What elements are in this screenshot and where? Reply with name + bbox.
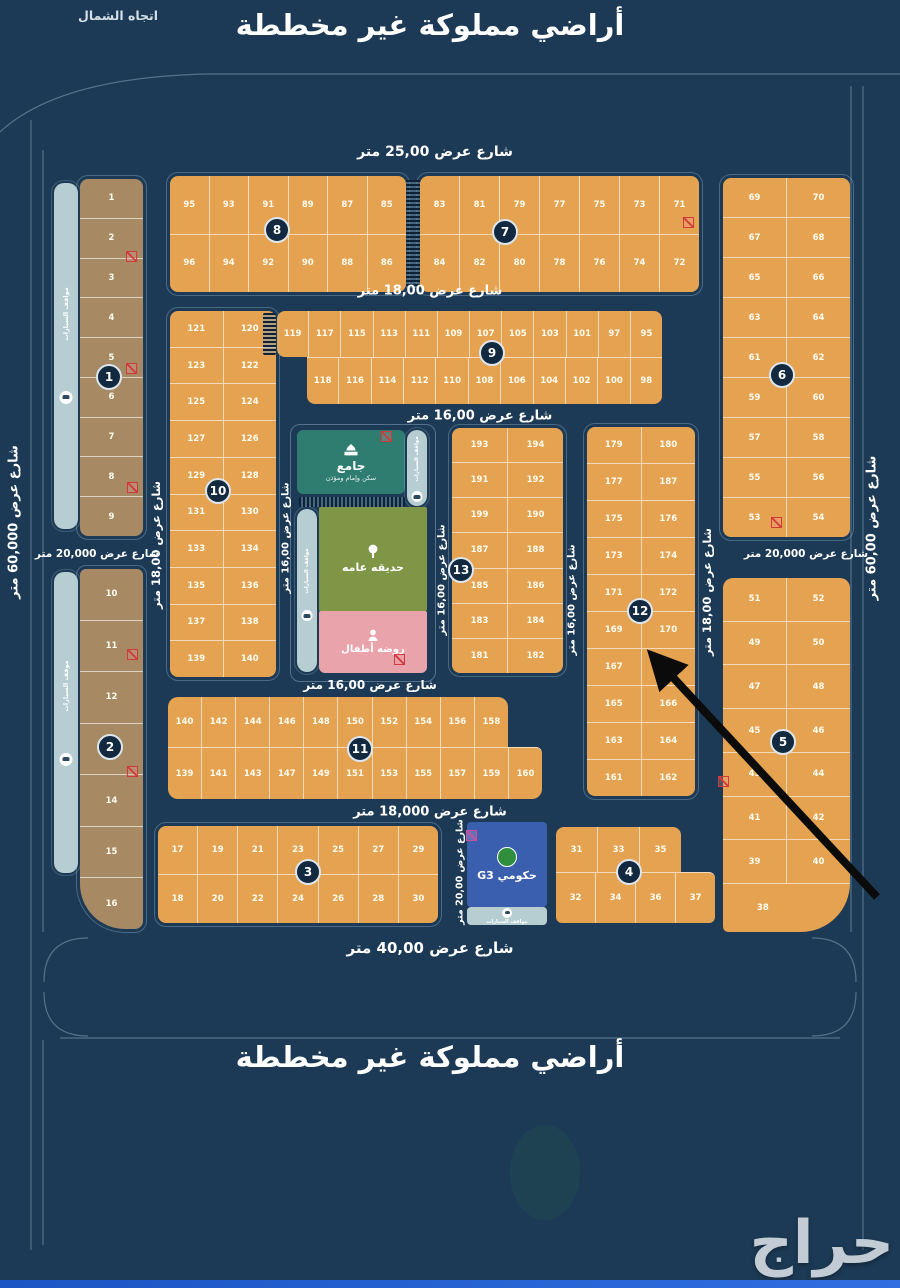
plot-row: 123122 (170, 347, 276, 384)
plot-cell: 18 (158, 875, 197, 923)
plot-cell: 160 (508, 748, 542, 799)
plot-cell: 93 (209, 176, 249, 234)
pink-marker-icon (466, 830, 477, 841)
plot-cell: 83 (420, 176, 459, 234)
hazard-marker-icon (381, 431, 392, 442)
block-4-badge: 4 (616, 859, 642, 885)
block-2-badge: 2 (97, 734, 123, 760)
car-icon (60, 391, 73, 404)
plot-cell: 64 (786, 298, 850, 337)
parking-strip-government: مواقف السيارات (467, 907, 547, 925)
plot-cell: 52 (786, 578, 850, 621)
plot-cell: 194 (507, 428, 563, 462)
plot-cell: 26 (318, 875, 358, 923)
plot-cell: 111 (405, 311, 437, 357)
block-3-badge: 3 (295, 859, 321, 885)
plot-cell: 65 (723, 258, 786, 297)
block-13-badge: 13 (448, 557, 474, 583)
plot-cell: 164 (641, 723, 696, 759)
plot-cell: 1 (80, 179, 143, 218)
plot-cell: 87 (327, 176, 367, 234)
street-label-60m-right: شارع عرض 60,00 متر (865, 456, 880, 601)
plot-cell: 183 (452, 604, 507, 638)
parking-strip-block-1: مواقف السيارات (54, 183, 78, 529)
plot-cell: 67 (723, 218, 786, 257)
hazard-marker-icon (718, 776, 729, 787)
street-label-16m-v-b: شارع عرض 16,00 متر (437, 524, 448, 635)
plot-cell: 137 (170, 605, 223, 641)
parking-strip-label: مواقف السيارات (62, 288, 70, 341)
north-direction-label: اتجاه الشمال (78, 8, 158, 23)
plot-cell: 60 (786, 378, 850, 417)
plot-cell: 56 (786, 458, 850, 497)
street-label-18m-v-left: شارع عرض 18,00 متر (149, 481, 163, 609)
plot-row: 163164 (587, 722, 695, 759)
plot-cell: 148 (303, 697, 337, 747)
block-9-badge: 9 (479, 340, 505, 366)
block-6-badge: 6 (769, 362, 795, 388)
plot-cell: 28 (358, 875, 398, 923)
plot-cell: 119 (277, 311, 308, 357)
plot-row: 193194 (452, 428, 563, 462)
plot-cell: 62 (786, 338, 850, 377)
plot-cell: 140 (168, 697, 201, 747)
plot-cell: 31 (556, 827, 597, 872)
plot-row: 175176 (587, 500, 695, 537)
plot-row: 173174 (587, 537, 695, 574)
haraj-watermark: حراج (750, 1208, 894, 1278)
block-8-badge: 8 (264, 217, 290, 243)
hazard-marker-icon (771, 517, 782, 528)
hazard-marker-icon (127, 649, 138, 660)
plot-cell: 102 (565, 358, 597, 404)
plot-cell: 3 (80, 259, 143, 298)
pedestrian-path-hatch (406, 180, 420, 288)
block-10-badge: 10 (205, 478, 231, 504)
plot-cell: 147 (269, 748, 303, 799)
plot-cell: 29 (398, 826, 438, 874)
plot-cell: 158 (474, 697, 508, 747)
plot-row: 15 (80, 826, 143, 878)
plot-cell: 76 (579, 235, 619, 293)
plot-cell: 95 (630, 311, 662, 357)
plot-row: 12 (80, 671, 143, 723)
plot-row: 7 (80, 417, 143, 457)
plot-cell: 182 (507, 639, 563, 673)
plot-cell: 186 (507, 569, 563, 603)
plot-cell: 73 (619, 176, 659, 234)
plot-cell: 135 (170, 568, 223, 604)
plot-cell: 58 (786, 418, 850, 457)
plot-cell: 143 (235, 748, 269, 799)
street-label-16m-fac: شارع عرض 16,00 متر (303, 678, 437, 692)
plot-cell: 17 (158, 826, 197, 874)
plot-cell: 166 (641, 686, 696, 722)
plot-cell: 134 (223, 531, 277, 567)
plot-row: 6768 (723, 217, 850, 257)
plot-cell: 4 (80, 298, 143, 337)
plot-cell: 153 (372, 748, 406, 799)
plot-cell: 106 (500, 358, 532, 404)
plot-cell: 95 (170, 176, 209, 234)
gov-badge-icon (497, 847, 517, 867)
parking-strip-label: مواقف السيارات (304, 548, 310, 593)
plot-cell: 142 (201, 697, 235, 747)
plot-cell: 41 (723, 797, 786, 840)
plot-cell: 180 (641, 427, 696, 463)
street-label-18m-v-right: شارع عرض 18,00 متر (700, 528, 714, 656)
plot-cell: 40 (786, 840, 850, 883)
plot-cell: 168 (641, 649, 696, 685)
plot-cell: 78 (539, 235, 579, 293)
plot-row: 1 (80, 179, 143, 218)
plot-cell: 124 (223, 384, 277, 420)
plot-row: 4344 (723, 752, 850, 796)
plot-row: 5354 (723, 497, 850, 537)
plot-cell: 167 (587, 649, 641, 685)
plot-row: 140142144146148150152154156158 (168, 697, 508, 747)
plot-cell: 100 (597, 358, 629, 404)
plot-row: 137138 (170, 604, 276, 641)
plot-row: 199190 (452, 497, 563, 532)
child-icon (366, 629, 380, 642)
plot-row: 167168 (587, 648, 695, 685)
plot-cell: 7 (80, 418, 143, 457)
plot-cell: 98 (630, 358, 662, 404)
plot-cell: 174 (641, 538, 696, 574)
plot-cell: 184 (507, 604, 563, 638)
bottom-bar (0, 1280, 900, 1288)
plot-cell: 20 (197, 875, 237, 923)
plot-row: 5758 (723, 417, 850, 457)
plot-cell: 36 (635, 873, 675, 923)
plot-cell: 57 (723, 418, 786, 457)
block-7-plots: 8381797775737184828078767472 (420, 176, 699, 292)
plot-cell: 115 (340, 311, 372, 357)
plot-cell: 188 (507, 533, 563, 567)
parking-strip-mosque: مواقف السيارات (407, 430, 427, 506)
plot-row: 179180 (587, 427, 695, 463)
plot-cell: 125 (170, 384, 223, 420)
plot-cell: 139 (168, 748, 201, 799)
pedestrian-path-hatch (299, 497, 405, 507)
street-label-20000m-right: شارع عرض 20,000 متر (744, 548, 868, 560)
plot-cell: 156 (440, 697, 474, 747)
car-icon (412, 491, 423, 502)
plot-cell: 55 (723, 458, 786, 497)
plot-row: 181182 (452, 638, 563, 673)
mosque-icon (343, 443, 359, 457)
plot-row: 10 (80, 569, 143, 620)
plot-cell: 152 (372, 697, 406, 747)
plot-cell: 116 (338, 358, 370, 404)
plot-cell: 173 (587, 538, 641, 574)
car-icon (60, 753, 73, 766)
plot-row: 14 (80, 774, 143, 826)
plot-cell: 101 (566, 311, 598, 357)
plot-cell: 39 (723, 840, 786, 883)
plot-cell: 89 (288, 176, 328, 234)
mosque-title: جامع (337, 459, 366, 473)
plot-cell: 35 (639, 827, 681, 872)
plot-cell: 50 (786, 622, 850, 665)
plot-cell: 117 (308, 311, 340, 357)
plot-cell: 103 (533, 311, 565, 357)
street-label-25m: شارع عرض 25,00 متر (357, 144, 513, 160)
hazard-marker-icon (126, 251, 137, 262)
plot-row: 6970 (723, 178, 850, 217)
hazard-marker-icon (127, 766, 138, 777)
plot-cell: 154 (406, 697, 440, 747)
plot-cell: 105 (501, 311, 533, 357)
plot-cell: 15 (80, 827, 143, 878)
plot-row: 9 (80, 496, 143, 536)
block-7-badge: 7 (492, 219, 518, 245)
plot-cell: 97 (598, 311, 630, 357)
plot-cell: 14 (80, 775, 143, 826)
plot-cell: 121 (170, 311, 223, 347)
plot-cell: 126 (223, 421, 277, 457)
plot-cell: 155 (406, 748, 440, 799)
street-label-40m: شارع عرض 40,00 متر (347, 939, 514, 957)
parking-strip-park: مواقف السيارات (297, 509, 317, 672)
plot-row: 121120 (170, 311, 276, 347)
street-label-20000m-left: شارع عرض 20,000 متر (35, 548, 159, 560)
plot-row: 191192 (452, 462, 563, 497)
hazard-marker-icon (394, 654, 405, 665)
car-icon (502, 908, 512, 918)
plot-row: 133134 (170, 530, 276, 567)
plot-cell: 37 (675, 873, 715, 923)
plot-cell: 75 (579, 176, 619, 234)
plot-cell: 77 (539, 176, 579, 234)
park-title: حديقه عامه (342, 561, 404, 574)
plot-row: 11 (80, 620, 143, 672)
plot-row: 127126 (170, 420, 276, 457)
plot-cell: 159 (474, 748, 508, 799)
street-label-20m-v: شارع عرض 20,00 متر (455, 819, 466, 925)
plot-cell: 90 (288, 235, 328, 293)
plot-cell: 118 (307, 358, 338, 404)
parking-strip-label: مواقف السيارات (486, 919, 527, 925)
plot-cell: 49 (723, 622, 786, 665)
plot-cell: 161 (587, 760, 641, 796)
plot-cell: 114 (371, 358, 403, 404)
hazard-marker-icon (126, 363, 137, 374)
plot-cell: 19 (197, 826, 237, 874)
plot-cell: 187 (641, 464, 696, 500)
plot-cell: 47 (723, 665, 786, 708)
title-bottom: أراضي مملوكة غير مخططة (236, 1040, 625, 1074)
faint-stamp (510, 1125, 580, 1220)
plot-cell: 144 (235, 697, 269, 747)
plot-cell: 127 (170, 421, 223, 457)
parking-strip-label: مواقف السيارات (414, 436, 420, 481)
plot-row: 4 (80, 297, 143, 337)
plot-cell: 68 (786, 218, 850, 257)
parking-strip-block-2: موقف السيارات (54, 572, 78, 873)
plot-cell: 130 (223, 495, 277, 531)
parking-strip-label: موقف السيارات (62, 661, 70, 712)
plot-cell: 193 (452, 428, 507, 462)
plot-row: 165166 (587, 685, 695, 722)
plot-cell: 165 (587, 686, 641, 722)
block-13-plots: 1931941911921991901871881851861831841811… (452, 428, 563, 673)
plot-cell: 157 (440, 748, 474, 799)
kindergarten-block: روضه أطفال (319, 611, 427, 673)
plot-cell: 175 (587, 501, 641, 537)
plot-cell: 22 (237, 875, 277, 923)
plot-cell: 92 (248, 235, 288, 293)
plot-cell: 177 (587, 464, 641, 500)
hazard-marker-icon (683, 217, 694, 228)
plot-cell: 179 (587, 427, 641, 463)
plat-map-canvas: أراضي مملوكة غير مخططة اتجاه الشمال أراض… (0, 0, 900, 1288)
government-block: حكومي G3 (467, 822, 547, 907)
street-label-60000m-left: شارع عرض 60,000 متر (7, 445, 22, 599)
plot-cell: 96 (170, 235, 209, 293)
plot-cell: 141 (201, 748, 235, 799)
plot-row: 83817977757371 (420, 176, 699, 234)
plot-row: 6566 (723, 257, 850, 297)
mosque-subtitle: سكن وإمام ومؤذن (326, 474, 376, 482)
plot-row: 3 (80, 258, 143, 298)
plot-row: 5556 (723, 457, 850, 497)
government-title: حكومي G3 (477, 869, 537, 882)
pedestrian-path-hatch (263, 313, 276, 355)
plot-cell: 10 (80, 569, 143, 620)
plot-cell: 70 (786, 178, 850, 217)
plot-row: 183184 (452, 603, 563, 638)
plot-cell: 43 (723, 753, 786, 796)
block-6-plots: 697067686566636461625960575855565354 (723, 178, 850, 537)
plot-row: 4748 (723, 664, 850, 708)
plot-cell: 136 (223, 568, 277, 604)
street-label-16m-mid: شارع عرض 16,00 متر (408, 409, 553, 424)
plot-cell: 138 (223, 605, 277, 641)
block-9-plots-top: 1191171151131111091071051031019795 (277, 311, 662, 357)
tree-icon (365, 544, 381, 559)
plot-row: 161162 (587, 759, 695, 796)
plot-cell: 176 (641, 501, 696, 537)
plot-cell: 30 (398, 875, 438, 923)
plot-cell: 123 (170, 348, 223, 384)
plot-cell: 139 (170, 641, 223, 677)
plot-cell: 163 (587, 723, 641, 759)
plot-cell: 190 (507, 498, 563, 532)
public-park-block: حديقه عامه (319, 507, 427, 611)
plot-row: 139140 (170, 640, 276, 677)
plot-row: 177187 (587, 463, 695, 500)
plot-cell: 146 (269, 697, 303, 747)
plot-cell: 149 (303, 748, 337, 799)
plot-cell: 51 (723, 578, 786, 621)
plot-cell: 72 (659, 235, 699, 293)
plot-cell: 54 (786, 498, 850, 537)
plot-row: 3940 (723, 839, 850, 883)
plot-cell: 74 (619, 235, 659, 293)
plot-cell: 63 (723, 298, 786, 337)
plot-cell: 25 (318, 826, 358, 874)
plot-cell: 48 (786, 665, 850, 708)
plot-cell: 42 (786, 797, 850, 840)
plot-cell: 12 (80, 672, 143, 723)
plot-cell: 104 (533, 358, 565, 404)
block-11-plots-top: 140142144146148150152154156158 (168, 697, 508, 747)
plot-row: 125124 (170, 383, 276, 420)
plot-row: 135136 (170, 567, 276, 604)
street-label-16m-v-c: شارع عرض 16,00 متر (567, 544, 578, 655)
plot-cell: 140 (223, 641, 277, 677)
street-label-18000m: شارع عرض 18,000 متر (353, 805, 507, 820)
plot-row: 5152 (723, 578, 850, 621)
plot-cell: 112 (403, 358, 435, 404)
street-label-18m-top: شارع عرض 18,00 متر (358, 284, 503, 299)
plot-cell: 199 (452, 498, 507, 532)
block-12-badge: 12 (627, 598, 653, 624)
plot-cell: 9 (80, 497, 143, 536)
plot-cell: 191 (452, 463, 507, 497)
plot-cell: 192 (507, 463, 563, 497)
street-label-16m-v-a: شارع عرض 16,00 متر (281, 482, 292, 593)
plot-cell: 162 (641, 760, 696, 796)
plot-cell: 133 (170, 531, 223, 567)
plot-cell: 113 (373, 311, 405, 357)
plot-row: 1191171151131111091071051031019795 (277, 311, 662, 357)
plot-cell: 27 (358, 826, 398, 874)
plot-cell: 85 (367, 176, 407, 234)
car-icon (302, 610, 313, 621)
plot-cell: 11 (80, 621, 143, 672)
plot-cell: 181 (452, 639, 507, 673)
block-1-badge: 1 (96, 364, 122, 390)
plot-cell: 110 (435, 358, 467, 404)
block-5-badge: 5 (770, 729, 796, 755)
block-11-badge: 11 (347, 736, 373, 762)
plot-cell: 69 (723, 178, 786, 217)
plot-cell: 94 (209, 235, 249, 293)
plot-row: 11811611411211010810610410210098 (307, 358, 662, 404)
hazard-marker-icon (127, 482, 138, 493)
plot-cell: 21 (237, 826, 277, 874)
plot-row: 4142 (723, 796, 850, 840)
plot-cell: 44 (786, 753, 850, 796)
plot-cell: 66 (786, 258, 850, 297)
plot-cell: 109 (437, 311, 469, 357)
plot-row: 6364 (723, 297, 850, 337)
title-top: أراضي مملوكة غير مخططة (236, 8, 625, 42)
plot-row: 4950 (723, 621, 850, 665)
plot-cell: 46 (786, 709, 850, 752)
plot-cell: 32 (556, 873, 595, 923)
